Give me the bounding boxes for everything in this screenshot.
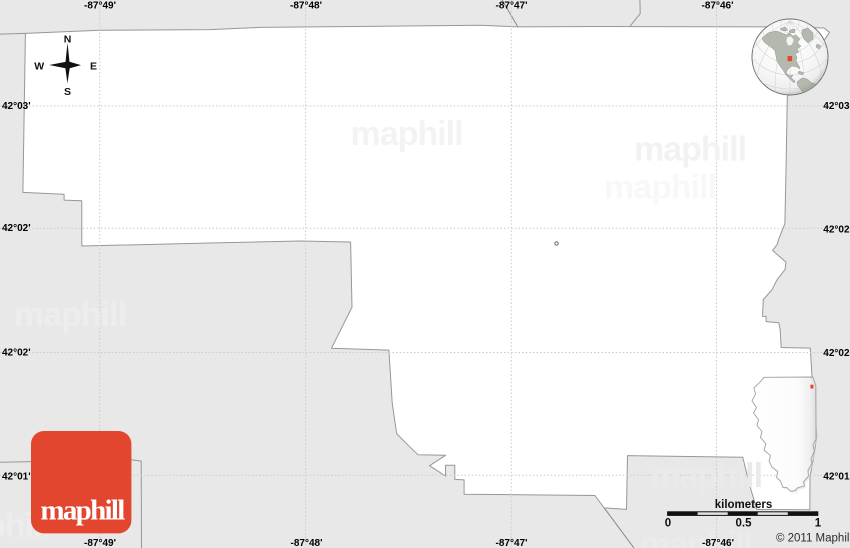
svg-text:maphill: maphill	[351, 115, 463, 153]
svg-text:maphill: maphill	[634, 131, 746, 169]
svg-text:-87°47': -87°47'	[496, 538, 528, 548]
svg-text:kilometers: kilometers	[715, 499, 773, 511]
svg-text:42°03': 42°03'	[823, 101, 850, 112]
svg-text:42°02': 42°02'	[2, 347, 31, 358]
svg-text:42°02': 42°02'	[2, 223, 31, 234]
svg-text:N: N	[64, 34, 72, 46]
svg-text:42°01': 42°01'	[823, 472, 850, 483]
svg-text:1: 1	[815, 518, 822, 530]
svg-text:42°03': 42°03'	[2, 101, 31, 112]
svg-text:-87°49': -87°49'	[84, 1, 116, 12]
svg-text:W: W	[34, 60, 44, 72]
svg-text:42°02': 42°02'	[823, 224, 850, 235]
svg-text:42°02': 42°02'	[823, 348, 850, 359]
svg-text:-87°47': -87°47'	[496, 1, 528, 12]
svg-text:maphill: maphill	[650, 457, 762, 495]
svg-text:0: 0	[665, 518, 671, 530]
svg-text:-87°46': -87°46'	[702, 538, 734, 548]
svg-text:42°01': 42°01'	[2, 472, 31, 483]
svg-text:-87°48': -87°48'	[291, 538, 323, 548]
svg-text:-87°48': -87°48'	[290, 1, 322, 12]
svg-text:E: E	[90, 60, 97, 72]
svg-text:maphill: maphill	[40, 495, 125, 527]
svg-text:maphill: maphill	[14, 296, 126, 334]
svg-text:-87°49': -87°49'	[84, 538, 116, 548]
svg-text:0.5: 0.5	[736, 518, 753, 530]
svg-text:-87°46': -87°46'	[702, 1, 734, 12]
svg-text:S: S	[64, 86, 71, 98]
svg-text:maphill: maphill	[604, 169, 716, 207]
svg-text:© 2011 Maphill: © 2011 Maphill	[776, 533, 850, 545]
